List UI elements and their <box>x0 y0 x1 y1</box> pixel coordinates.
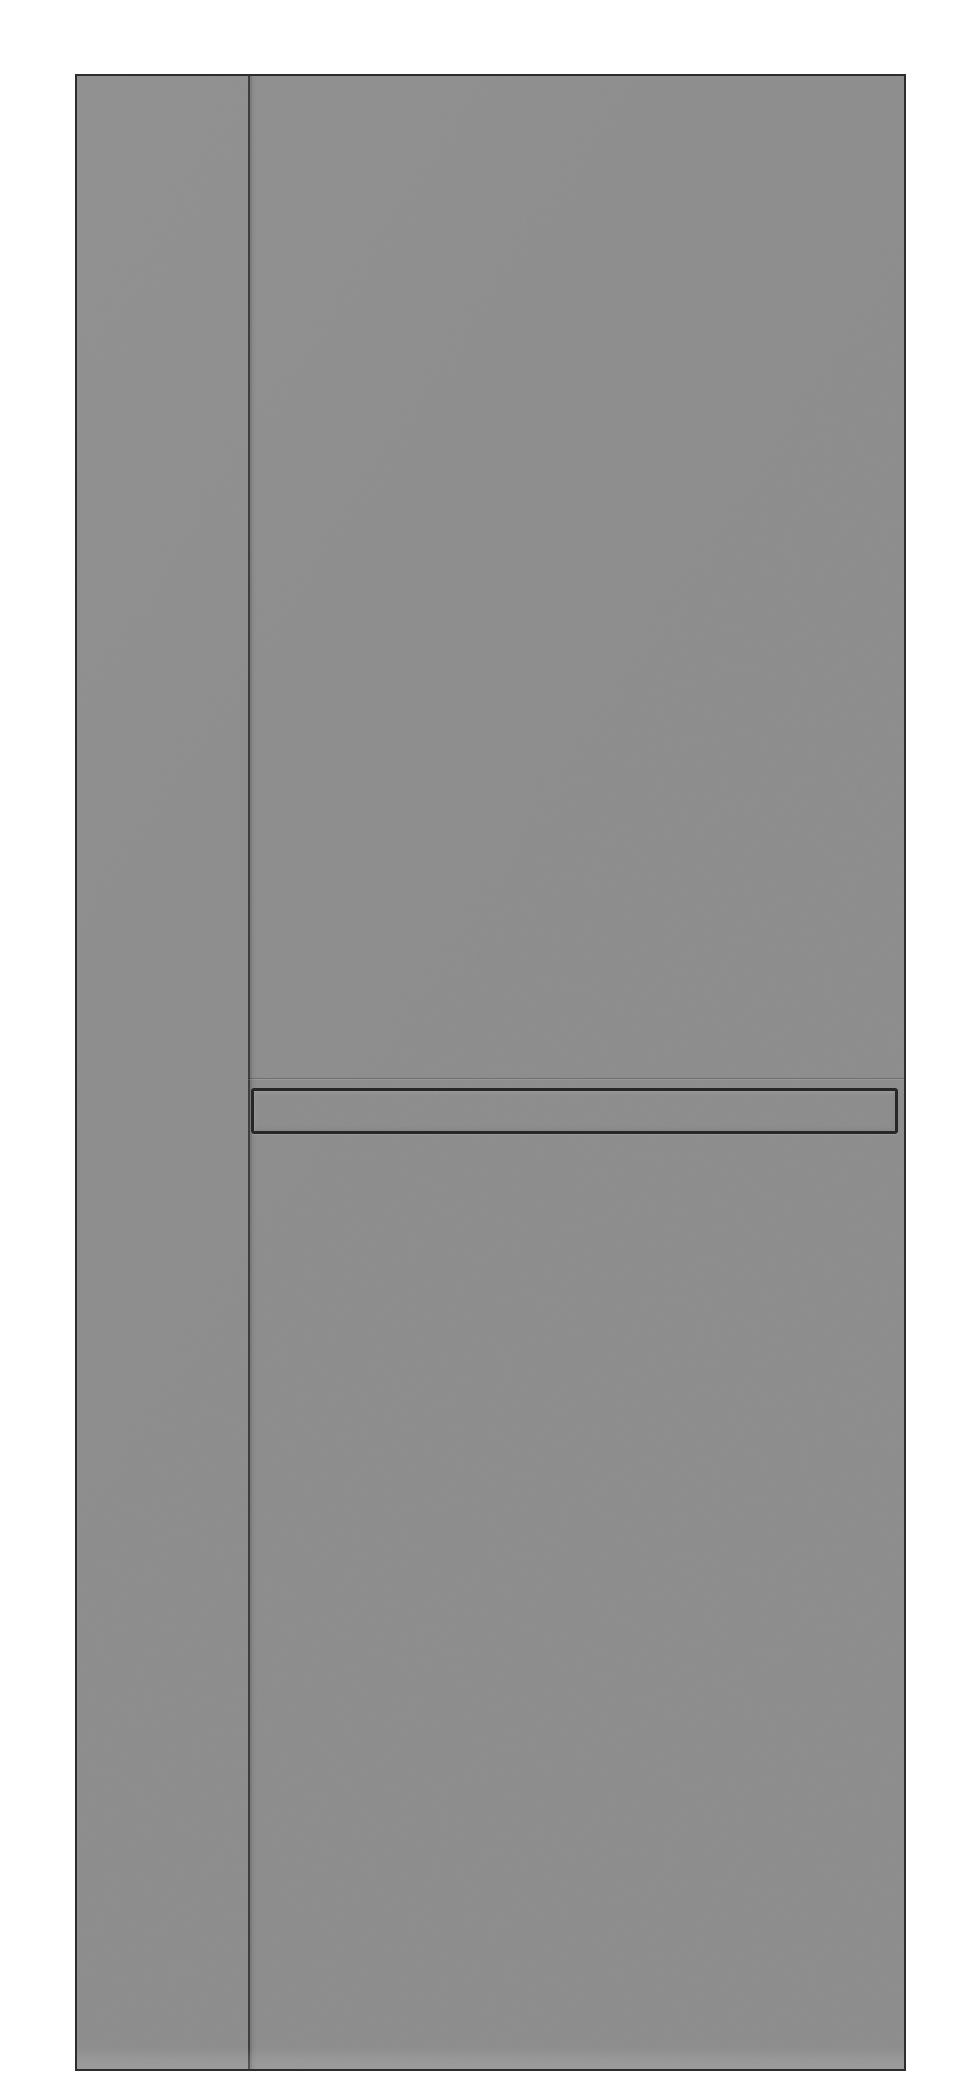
photo-grain-texture <box>77 76 904 2069</box>
door-panel <box>75 74 906 2071</box>
vertical-groove <box>248 76 257 2069</box>
recessed-handle <box>251 1088 898 1134</box>
horizontal-seam <box>248 1078 904 1080</box>
floor-reflection <box>77 2047 904 2069</box>
canvas <box>0 0 980 2100</box>
